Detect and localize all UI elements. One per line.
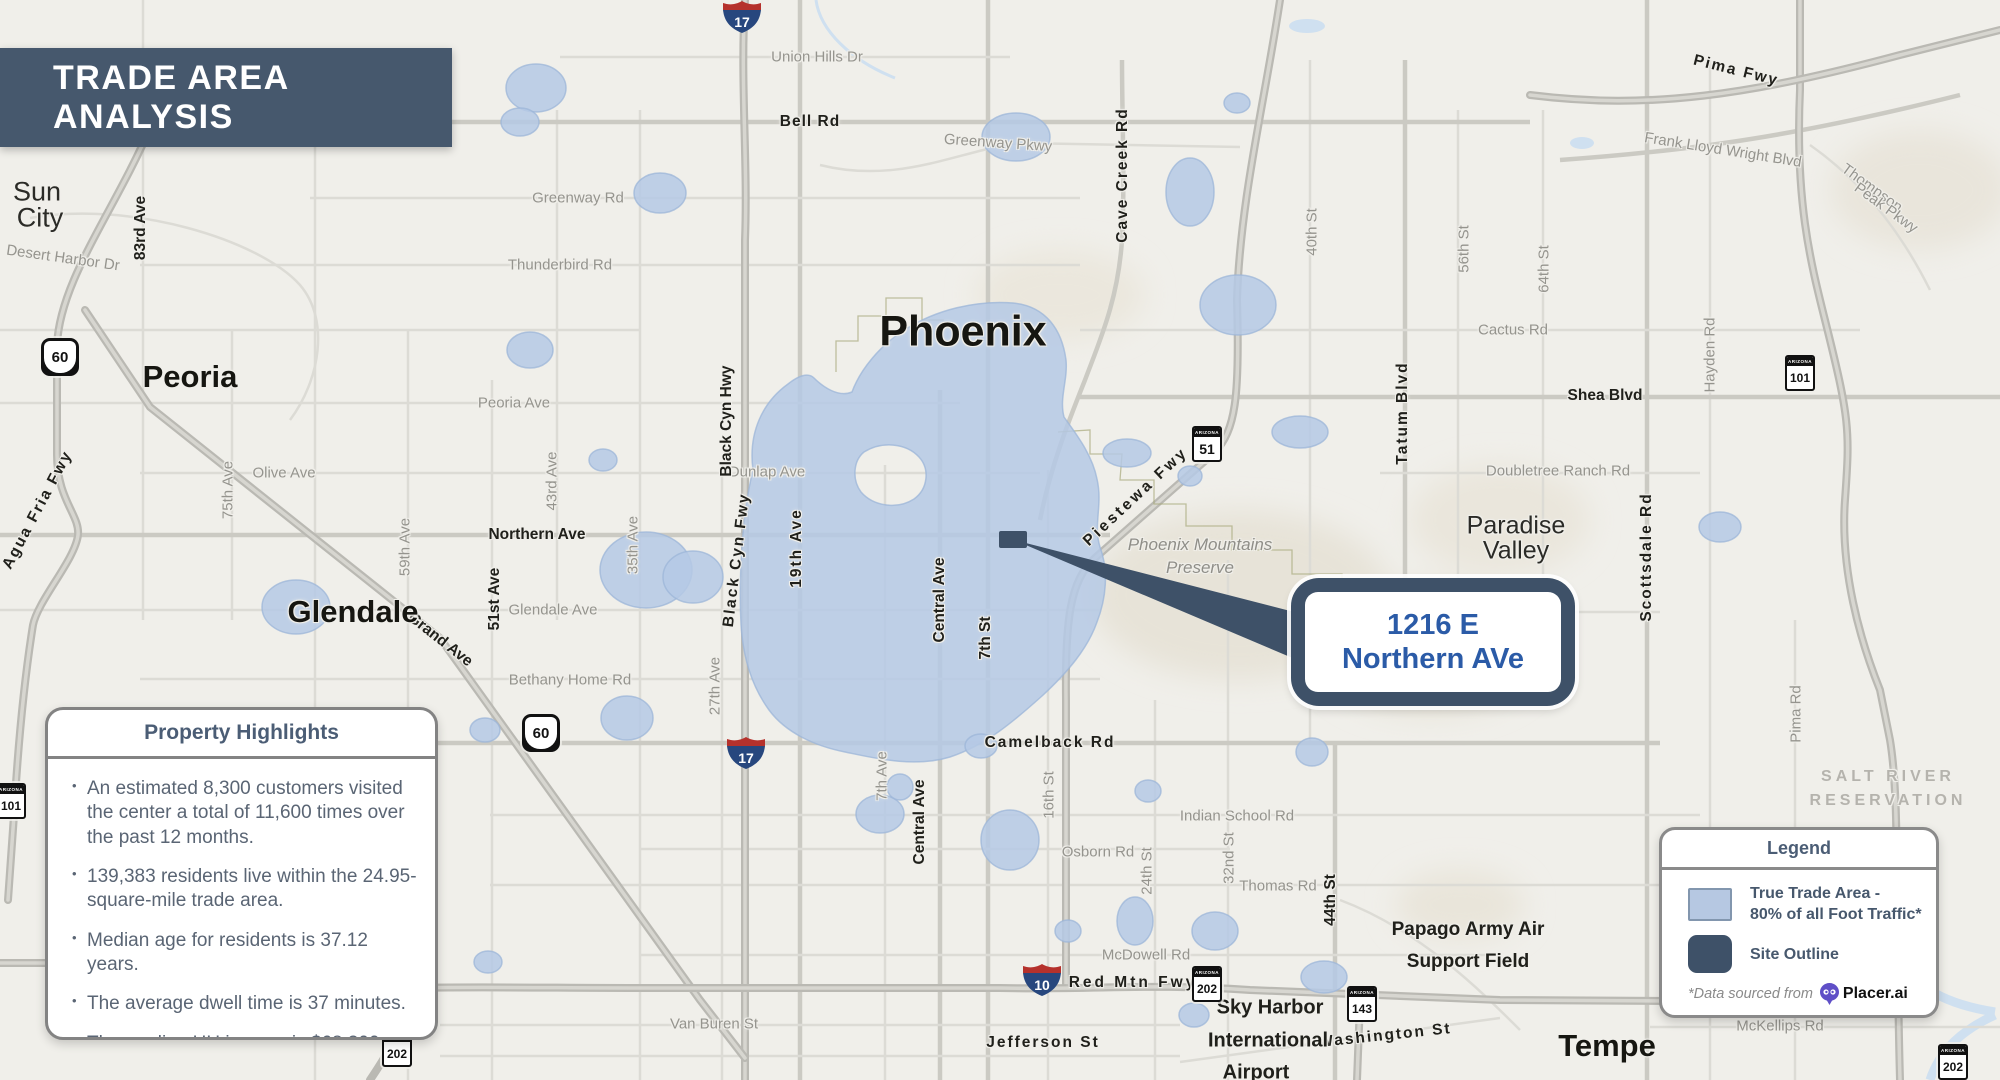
svg-text:17: 17 [734, 14, 750, 30]
road-label-scottsdale: Scottsdale Rd [1638, 492, 1656, 621]
road-label-dunlap: Dunlap Ave [729, 464, 805, 481]
az-51-shield: ARIZONA51 [1192, 426, 1222, 462]
road-label-cave-creek: Cave Creek Rd [1114, 107, 1132, 242]
legend-source-note: *Data sourced from Placer.ai [1688, 983, 1936, 1005]
page-title: TRADE AREA ANALYSIS [53, 59, 452, 137]
legend-item-site-outline: Site Outline [1688, 935, 1936, 973]
road-label-olive: Olive Ave [252, 465, 315, 482]
road-label-16th: 16th St [1041, 771, 1058, 819]
az-101-shield-east: ARIZONA101 [1785, 355, 1815, 391]
legend-panel: Legend True Trade Area - 80% of all Foot… [1659, 827, 1939, 1018]
road-label-43rd: 43rd Ave [544, 452, 561, 511]
road-label-51st: 51st Ave [486, 568, 504, 631]
road-label-75th: 75th Ave [220, 461, 237, 519]
site-address-callout: 1216 E Northern AVe [1291, 578, 1575, 706]
road-label-van-buren: Van Buren St [670, 1016, 758, 1033]
trade-area-map: Union Hills Dr Bell Rd Greenway Pkwy Gre… [0, 0, 2000, 1080]
trade-area-label-line2: 80% of all Foot Traffic* [1750, 904, 1922, 925]
area-label-papago-1: Papago Army Air [1392, 919, 1545, 941]
road-label-camelback: Camelback Rd [985, 734, 1116, 752]
road-label-mckellips: McKellips Rd [1736, 1018, 1824, 1035]
property-highlight-item: The average dwell time is 37 minutes. [72, 992, 417, 1016]
area-label-salt-river-1: SALT RIVER [1821, 768, 1955, 786]
road-label-83rd: 83rd Ave [132, 196, 150, 260]
site-outline-swatch [1688, 935, 1732, 973]
road-label-59th: 59th Ave [397, 518, 414, 576]
road-label-black-cyn-hwy: Black Cyn Hwy [718, 365, 736, 476]
road-label-64th: 64th St [1536, 245, 1553, 293]
road-label-red-mtn: Red Mtn Fwy [1069, 974, 1198, 992]
trade-area-swatch [1688, 888, 1732, 921]
road-label-thomas: Thomas Rd [1239, 878, 1317, 895]
road-label-44th: 44th St [1322, 874, 1340, 926]
site-address-line1: 1216 E [1387, 608, 1479, 642]
road-label-7th-st: 7th St [977, 616, 995, 659]
road-label-thunderbird: Thunderbird Rd [508, 257, 612, 274]
property-highlights-panel: Property Highlights An estimated 8,300 c… [45, 707, 438, 1040]
road-label-northern: Northern Ave [488, 526, 585, 544]
az-202-shield-southeast: ARIZONA202 [1938, 1044, 1968, 1080]
area-label-sky-harbor-1: Sky Harbor [1217, 997, 1324, 1020]
us-60-shield-mid: 60 [522, 714, 560, 752]
property-highlight-item: 139,383 residents live within the 24.95-… [72, 865, 417, 914]
road-label-shea: Shea Blvd [1568, 387, 1643, 405]
city-label-tempe: Tempe [1558, 1028, 1656, 1064]
road-label-tatum: Tatum Blvd [1394, 361, 1412, 464]
road-label-24th: 24th St [1139, 847, 1156, 895]
road-label-cactus: Cactus Rd [1478, 322, 1548, 339]
svg-text:10: 10 [1034, 977, 1050, 993]
road-label-40th: 40th St [1304, 208, 1321, 256]
property-highlights-title: Property Highlights [48, 710, 435, 759]
property-highlight-item: An estimated 8,300 customers visited the… [72, 777, 417, 850]
road-label-doubletree: Doubletree Ranch Rd [1486, 463, 1630, 480]
road-label-56th: 56th St [1456, 225, 1473, 273]
site-address-line2: Northern AVe [1342, 642, 1524, 676]
road-label-7th-ave: 7th Ave [874, 751, 891, 801]
legend-item-trade-area: True Trade Area - 80% of all Foot Traffi… [1688, 883, 1936, 925]
road-label-mcdowell: McDowell Rd [1102, 947, 1190, 964]
interstate-17-shield-top: 17 [722, 0, 762, 34]
property-highlight-item: The median HH income is $68,300. [72, 1032, 417, 1041]
area-label-papago-2: Support Field [1407, 951, 1529, 973]
road-label-greenway-rd: Greenway Rd [532, 190, 624, 207]
road-label-union-hills: Union Hills Dr [771, 49, 863, 66]
road-label-central-s: Central Ave [911, 780, 929, 865]
area-label-salt-river-2: RESERVATION [1810, 792, 1967, 810]
source-brand-text: Placer.ai [1843, 985, 1908, 1003]
interstate-10-shield: 10 [1022, 963, 1062, 997]
us-60-shield-west: 60 [41, 338, 79, 376]
road-label-peoria-ave: Peoria Ave [478, 395, 550, 412]
area-label-preserve-2: Preserve [1166, 558, 1234, 578]
road-label-bethany: Bethany Home Rd [509, 672, 632, 689]
road-label-central-n: Central Ave [931, 558, 949, 643]
source-note-text: *Data sourced from [1688, 986, 1813, 1002]
title-banner: TRADE AREA ANALYSIS [0, 48, 452, 147]
road-label-bell: Bell Rd [780, 113, 840, 131]
placer-logo-icon [1820, 983, 1839, 1005]
city-label-paradise-2: Valley [1483, 537, 1549, 566]
city-label-phoenix: Phoenix [879, 308, 1046, 357]
property-highlight-item: Median age for residents is 37.12 years. [72, 929, 417, 978]
road-label-osborn: Osborn Rd [1062, 844, 1135, 861]
trade-area-label-line1: True Trade Area - [1750, 883, 1922, 904]
road-label-jefferson: Jefferson St [986, 1034, 1100, 1052]
interstate-17-shield-mid: 17 [726, 736, 766, 770]
road-label-hayden: Hayden Rd [1702, 317, 1719, 392]
city-label-peoria: Peoria [143, 359, 238, 395]
area-label-preserve-1: Phoenix Mountains [1128, 535, 1273, 555]
road-label-pima-rd: Pima Rd [1788, 685, 1805, 743]
road-label-35th: 35th Ave [625, 516, 642, 574]
road-label-indian-school: Indian School Rd [1180, 808, 1294, 825]
az-101-shield-west: ARIZONA101 [0, 783, 26, 819]
road-label-32nd: 32nd St [1221, 832, 1238, 884]
site-outline-label: Site Outline [1750, 944, 1839, 965]
city-label-sun-city-2: City [17, 203, 64, 234]
road-label-27th: 27th Ave [707, 657, 724, 715]
road-label-glendale-ave: Glendale Ave [509, 602, 598, 619]
area-label-sky-harbor-3: Airport [1223, 1062, 1290, 1080]
svg-text:17: 17 [738, 750, 754, 766]
az-202-shield-redmtn: ARIZONA202 [1192, 966, 1222, 1002]
city-label-glendale: Glendale [288, 594, 419, 630]
legend-title: Legend [1662, 830, 1936, 870]
road-label-19th: 19th Ave [788, 508, 806, 587]
area-label-sky-harbor-2: International [1208, 1030, 1328, 1053]
az-143-shield: ARIZONA143 [1347, 986, 1377, 1022]
